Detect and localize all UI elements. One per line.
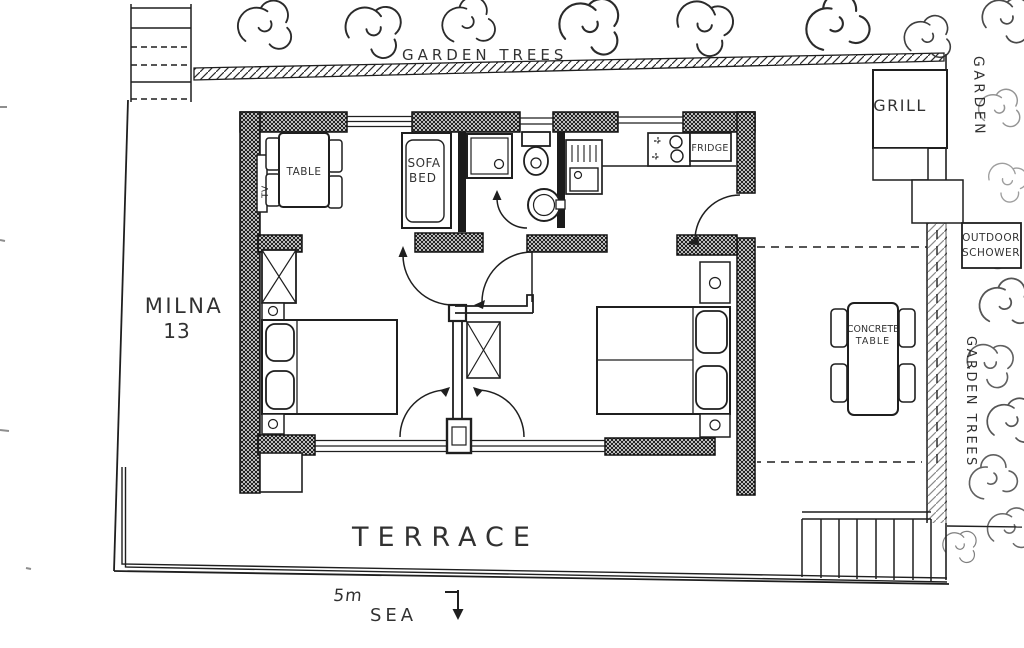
outdoor-shower-label-2: SCHOWER <box>962 247 1020 259</box>
concrete-table-set <box>831 303 915 415</box>
chair-icon <box>328 140 342 172</box>
garden-box-b <box>912 180 963 223</box>
chair-icon <box>831 364 847 402</box>
house-name-label: MILNA <box>145 294 224 318</box>
nightstand-knob <box>269 420 278 429</box>
sofa-bed-label-1: SOFA <box>407 156 440 170</box>
tree-icon <box>978 0 1024 45</box>
shower-tray <box>471 138 508 174</box>
concrete-table-label-2: TABLE <box>855 336 890 347</box>
concrete-table-icon <box>848 303 898 415</box>
toilet-tank <box>522 132 550 146</box>
outdoor-shower-label-1: OUTDOOR <box>962 232 1020 244</box>
table-label: TABLE <box>286 166 322 178</box>
stove-burner <box>671 150 683 162</box>
chair-icon <box>899 364 915 402</box>
washbasin-bowl <box>534 195 555 216</box>
patio-dashed-bounds <box>753 247 927 462</box>
concrete-table-label-1: CONCRETE <box>847 324 899 335</box>
garden-path-line <box>947 526 1022 527</box>
fence-strip-top <box>194 53 944 80</box>
terrace-label: TERRACE <box>351 522 539 553</box>
wall-right-upper <box>737 112 755 193</box>
tree-icon <box>987 398 1024 442</box>
wall-bottom-right <box>605 438 715 455</box>
sink-basin <box>570 168 598 191</box>
floor-plan-drawing: GARDEN TREES GARDEN GRILL OUTDOOR SCHOWE… <box>0 0 1024 648</box>
sea-arrow <box>445 590 464 620</box>
plot-boundary-bottom <box>114 571 949 584</box>
house-number-label: 13 <box>163 319 190 343</box>
pillow-icon <box>266 324 294 361</box>
shower-drain <box>495 160 504 169</box>
chair-icon <box>899 309 915 347</box>
down-arrow-icon <box>453 609 464 620</box>
pillow-icon <box>696 366 727 409</box>
sofa-bed-label-2: BED <box>409 171 437 185</box>
fridge-label: FRIDGE <box>691 143 728 154</box>
pillow-icon <box>696 311 727 353</box>
garden-trees-top-label: GARDEN TREES <box>402 46 567 64</box>
wall-top-3 <box>553 112 618 132</box>
tree-icon <box>904 16 950 58</box>
floor-plan-page: GARDEN TREES GARDEN GRILL OUTDOOR SCHOWE… <box>0 0 1024 648</box>
garden-trees-right-label: GARDEN TREES <box>963 336 978 468</box>
toilet-bowl <box>531 158 541 168</box>
tree-icon <box>238 1 291 49</box>
nightstand-knob <box>710 278 721 289</box>
chair-icon <box>328 176 342 208</box>
tree-icon <box>976 276 1024 330</box>
tree-icon <box>667 0 742 61</box>
tv-label: TV <box>261 185 271 199</box>
chair-icon <box>831 309 847 347</box>
sink-drain <box>575 172 582 179</box>
stairs-top-left <box>131 4 191 102</box>
wall-top-2 <box>412 112 520 132</box>
wall-mid-2 <box>415 233 483 252</box>
stove-icon <box>648 133 690 166</box>
scale-label: 5m <box>332 586 363 606</box>
scan-marks <box>0 107 31 569</box>
wall-mid-4 <box>677 235 737 255</box>
garden-right-label: GARDEN <box>970 56 987 138</box>
washbasin-tap <box>556 200 565 209</box>
entry-step <box>260 453 302 492</box>
wall-right-lower <box>737 238 755 495</box>
tree-icon <box>437 0 498 51</box>
tree-icon <box>987 508 1024 547</box>
stove-burner <box>670 136 682 148</box>
grill-area <box>873 70 963 223</box>
outdoor-shower-box <box>962 223 1021 268</box>
garden-box-a <box>873 148 928 180</box>
stairs-bottom-right <box>802 512 931 581</box>
tree-icon <box>339 0 409 62</box>
pillow-icon <box>266 371 294 409</box>
tree-icon <box>981 154 1024 206</box>
tree-icon <box>796 0 874 61</box>
grill-label: GRILL <box>873 96 927 115</box>
bathroom-wall-left <box>458 132 466 232</box>
wall-mid-3 <box>527 235 607 252</box>
nightstand-knob <box>710 420 720 430</box>
partition-post-inner <box>452 427 466 445</box>
wall-bottom-left <box>258 435 315 455</box>
nightstand-knob <box>269 307 278 316</box>
chair-icon <box>266 138 280 170</box>
sea-label: SEA <box>370 605 417 626</box>
